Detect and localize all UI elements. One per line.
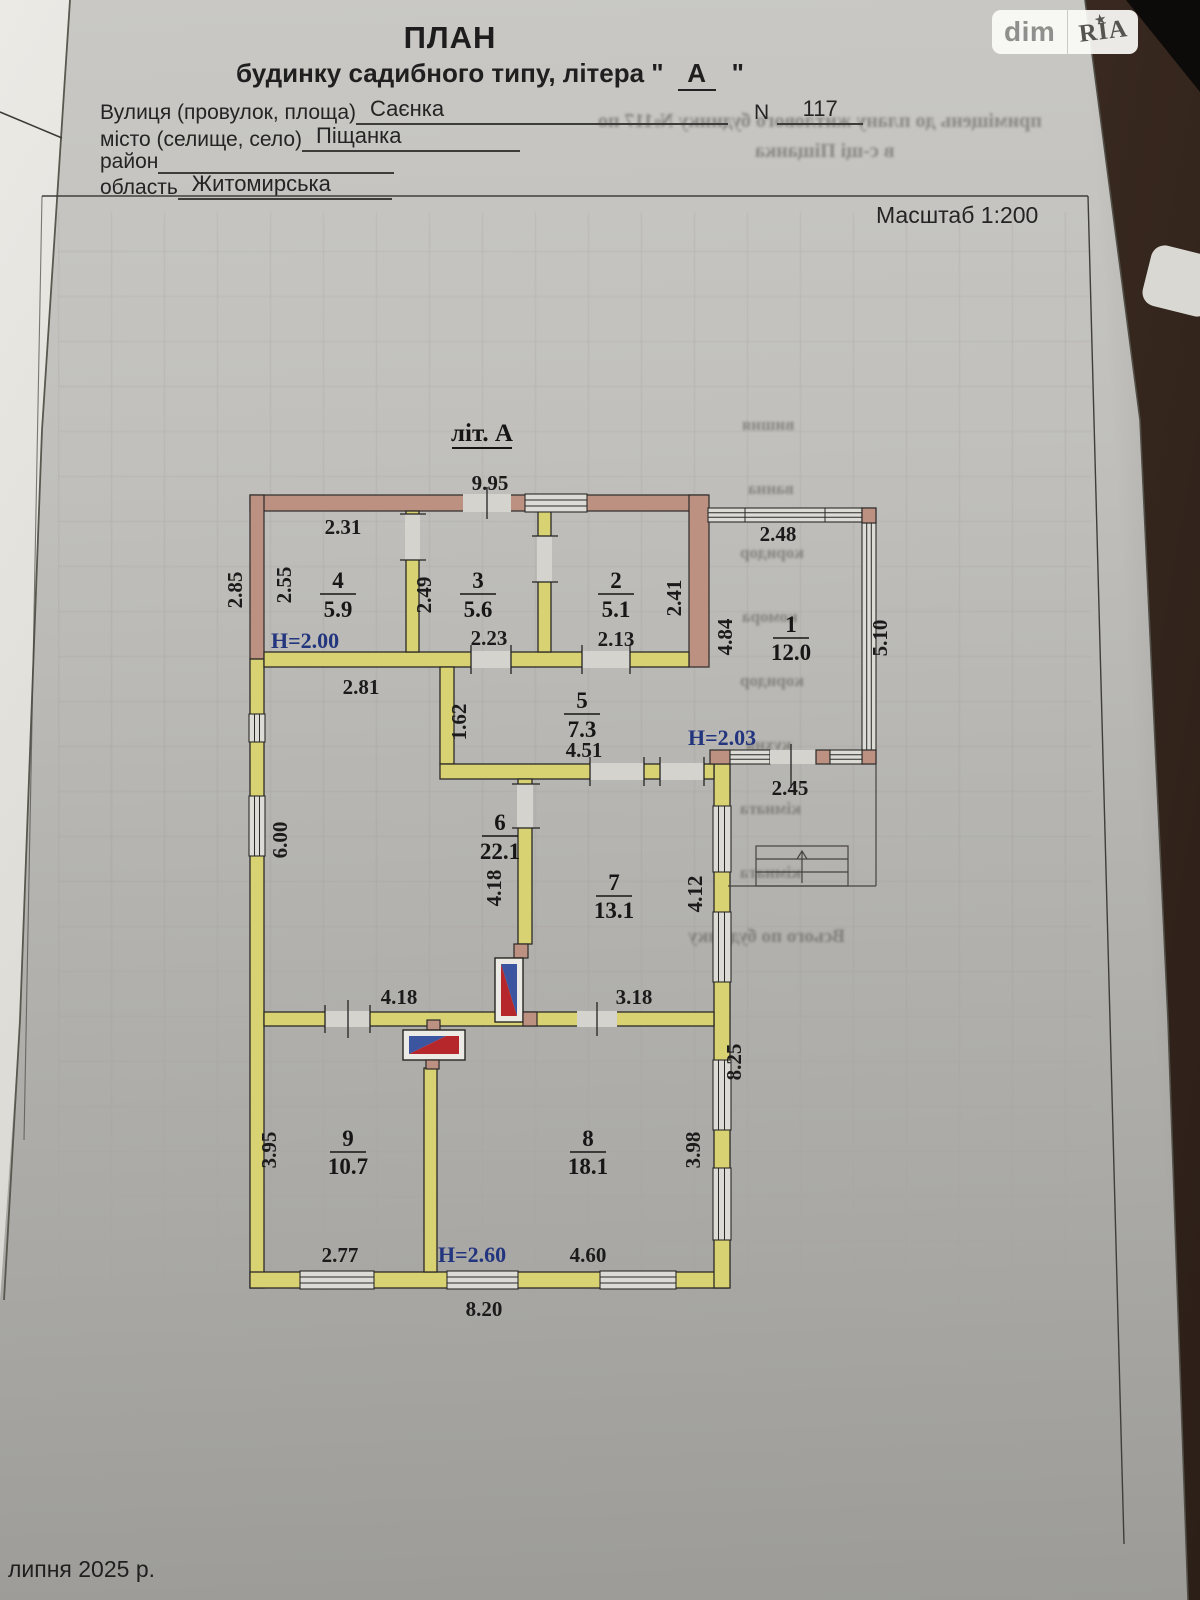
room7-number: 7 — [608, 870, 620, 895]
dim-veranda-left-height: 4.84 — [713, 618, 737, 655]
room1-area: 12.0 — [771, 640, 811, 665]
room3-area: 5.6 — [464, 597, 493, 622]
dim-room3-height: 2.49 — [412, 577, 436, 614]
dim-room9-width: 2.77 — [322, 1243, 359, 1267]
dim-bottom-width: 8.20 — [466, 1297, 503, 1321]
room8-number: 8 — [582, 1126, 594, 1151]
page-title: ПЛАН — [60, 20, 840, 56]
subtitle-prefix: будинку садибного типу, літера " — [236, 58, 664, 88]
room2-area: 5.1 — [602, 597, 631, 622]
dim-room6-right-height: 4.18 — [482, 870, 506, 907]
ria-logo: ★ RIA — [1068, 10, 1138, 54]
dim-room4-width: 2.31 — [325, 515, 362, 539]
house-number-value: 117 — [803, 96, 838, 122]
room2-number: 2 — [610, 568, 622, 593]
field-town: місто (селище, село) Піщанка — [100, 123, 520, 152]
wall-left — [250, 659, 264, 1288]
dim-outer-left-height: 2.85 — [223, 572, 247, 609]
floor-plan: літ. А — [200, 410, 960, 1340]
field-house-number: 117 — [777, 96, 863, 125]
field-region-value: Житомирська — [178, 171, 392, 200]
dim-room5-width: 4.51 — [566, 738, 603, 762]
dim-right-outer-height: 8.25 — [722, 1044, 746, 1081]
height-label-h203: Н=2.03 — [688, 725, 756, 750]
town-value: Піщанка — [316, 123, 402, 149]
field-region: область Житомирська — [100, 171, 392, 200]
room4-number: 4 — [332, 568, 344, 593]
ria-text: RIA — [1077, 15, 1129, 49]
dim-room7-height: 4.12 — [683, 876, 707, 913]
height-label-h260: Н=2.60 — [438, 1242, 506, 1267]
dim-room8-height: 3.98 — [681, 1132, 705, 1169]
dim-room5-left-height: 1.62 — [447, 704, 471, 741]
field-label: область — [100, 176, 178, 200]
street-value: Саєнка — [370, 96, 444, 122]
dim-room6-left-height: 6.00 — [268, 822, 292, 859]
dim-room4-height: 2.55 — [272, 567, 296, 604]
dim-logo: dim — [992, 10, 1068, 54]
dim-room2-width: 2.13 — [598, 627, 635, 651]
plan-caption: літ. А — [451, 420, 513, 447]
page-subtitle: будинку садибного типу, літера "А" — [40, 58, 940, 91]
room9-number: 9 — [342, 1126, 354, 1151]
white-card-corner — [1140, 242, 1200, 319]
dim-top-width: 9.95 — [472, 471, 509, 495]
dim-room8-width: 4.60 — [570, 1243, 607, 1267]
dim-veranda-right-height: 5.10 — [868, 620, 892, 657]
dim-veranda-width: 2.48 — [760, 522, 797, 546]
dim-room9-height: 3.95 — [257, 1132, 281, 1169]
veranda-wall-top — [708, 508, 862, 522]
dim-room6-top-width: 2.81 — [343, 675, 380, 699]
room7-area: 13.1 — [594, 898, 634, 923]
number-label: N — [754, 101, 769, 125]
bleedthrough-text: в с-щі Піщанка — [755, 140, 895, 163]
document-paper: приміщень до плану житлового будинку №11… — [0, 0, 1200, 1600]
room6-area: 22.1 — [480, 839, 520, 864]
room1-number: 1 — [785, 612, 797, 637]
wall-room9-room8 — [424, 1068, 437, 1272]
wall-left-upper — [250, 495, 264, 659]
field-town-value: Піщанка — [302, 123, 520, 152]
dim-room3-width: 2.23 — [471, 626, 508, 650]
dim-ria-watermark: dim ★ RIA — [992, 10, 1138, 54]
room4-area: 5.9 — [324, 597, 353, 622]
region-value: Житомирська — [192, 171, 331, 197]
photo-scene: приміщень до плану житлового будинку №11… — [0, 0, 1200, 1600]
scale-label: Масштаб 1:200 — [876, 202, 1038, 229]
stairs — [756, 846, 848, 886]
subtitle-suffix: " — [732, 58, 744, 88]
dim-room6-bottom-width: 4.18 — [381, 985, 418, 1009]
wall-room2-veranda — [689, 495, 709, 667]
dim-veranda-door-width: 2.45 — [772, 776, 809, 800]
building-letter: А — [678, 58, 716, 91]
dim-room7-bottom-width: 3.18 — [616, 985, 653, 1009]
date-note: липня 2025 р. — [8, 1556, 155, 1583]
room9-area: 10.7 — [328, 1154, 368, 1179]
room8-area: 18.1 — [568, 1154, 608, 1179]
stove-room7 — [495, 944, 537, 1026]
field-label: Вулиця (провулок, площа) — [100, 101, 356, 125]
field-street-value: Саєнка — [356, 96, 728, 125]
field-street: Вулиця (провулок, площа) Саєнка N 117 — [100, 96, 863, 125]
dim-room2-height: 2.41 — [662, 580, 686, 617]
height-label-h200: Н=2.00 — [271, 628, 339, 653]
stove-room9 — [403, 1020, 465, 1069]
room3-number: 3 — [472, 568, 484, 593]
room6-number: 6 — [494, 810, 506, 835]
room5-number: 5 — [576, 688, 588, 713]
